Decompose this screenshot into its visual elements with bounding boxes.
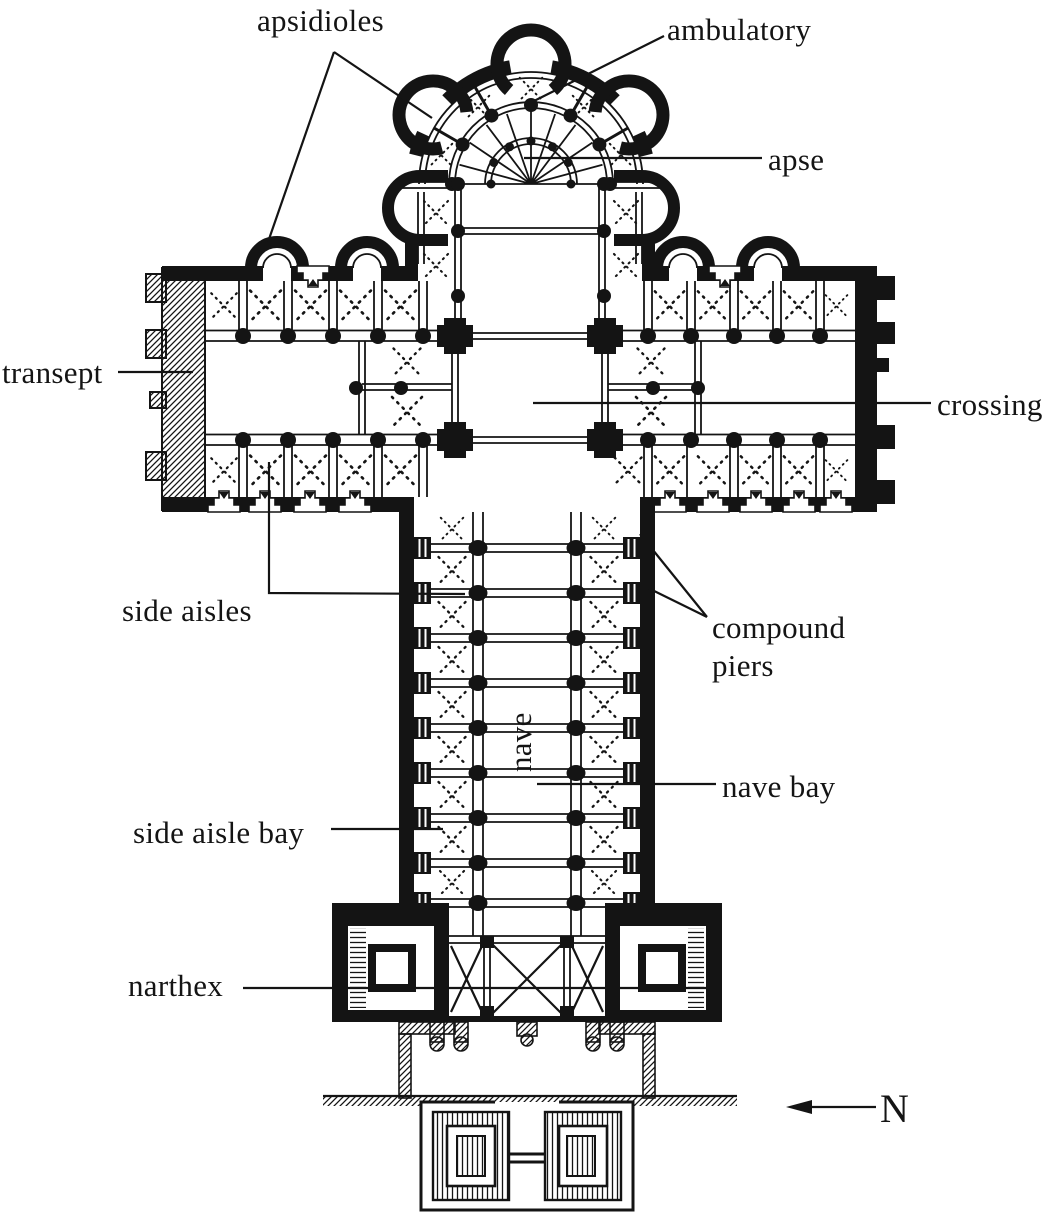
leader-apsidioles <box>268 52 432 242</box>
label-transept: transept <box>2 355 103 390</box>
transept-south-end-wall <box>855 268 895 510</box>
flank-chapel-right <box>614 176 674 240</box>
north-arrow: N <box>786 1086 909 1131</box>
narthex-tower-south-core <box>620 926 706 1010</box>
label-apse: apse <box>768 142 824 177</box>
narthex-block <box>332 903 722 1098</box>
west-freestanding-structure <box>421 1102 633 1210</box>
label-compound-piers-line1: compound <box>712 610 845 645</box>
floor-plan-figure: apsidioles ambulatory apse transept cros… <box>0 0 1056 1221</box>
chevet <box>388 30 674 333</box>
west-structure-stair-tower-north <box>433 1112 509 1200</box>
label-apsidioles: apsidioles <box>257 3 384 38</box>
narthex-tower-north-core <box>348 926 434 1010</box>
nave-north-wall <box>399 497 414 947</box>
transept-arcades <box>205 331 855 446</box>
transept-piers <box>235 328 828 448</box>
wall-responds <box>208 266 852 512</box>
crossing-square <box>437 318 623 458</box>
portal-columns <box>430 1022 624 1051</box>
label-side-aisles: side aisles <box>122 593 252 628</box>
narthex-vault-ribs <box>451 944 603 1014</box>
label-compound-piers-line2: piers <box>712 648 774 683</box>
west-structure-stair-tower-south <box>545 1112 621 1200</box>
choir <box>395 177 667 333</box>
label-nave: nave <box>503 712 538 772</box>
transept-chapels <box>251 242 794 268</box>
label-ambulatory: ambulatory <box>667 12 811 47</box>
label-side-aisle-bay: side aisle bay <box>133 815 304 850</box>
nave-south-wall <box>640 497 655 947</box>
transept-north-end-wall <box>146 268 205 510</box>
transept-block <box>146 242 895 512</box>
label-narthex: narthex <box>128 968 223 1003</box>
north-arrow-head <box>786 1100 812 1114</box>
apse-semidome-fan <box>457 110 605 189</box>
label-north: N <box>880 1086 909 1131</box>
label-nave-bay: nave bay <box>722 769 836 804</box>
west-porch <box>399 1022 655 1098</box>
figure-page: apsidioles ambulatory apse transept cros… <box>0 0 1056 1221</box>
label-crossing: crossing <box>937 387 1043 422</box>
